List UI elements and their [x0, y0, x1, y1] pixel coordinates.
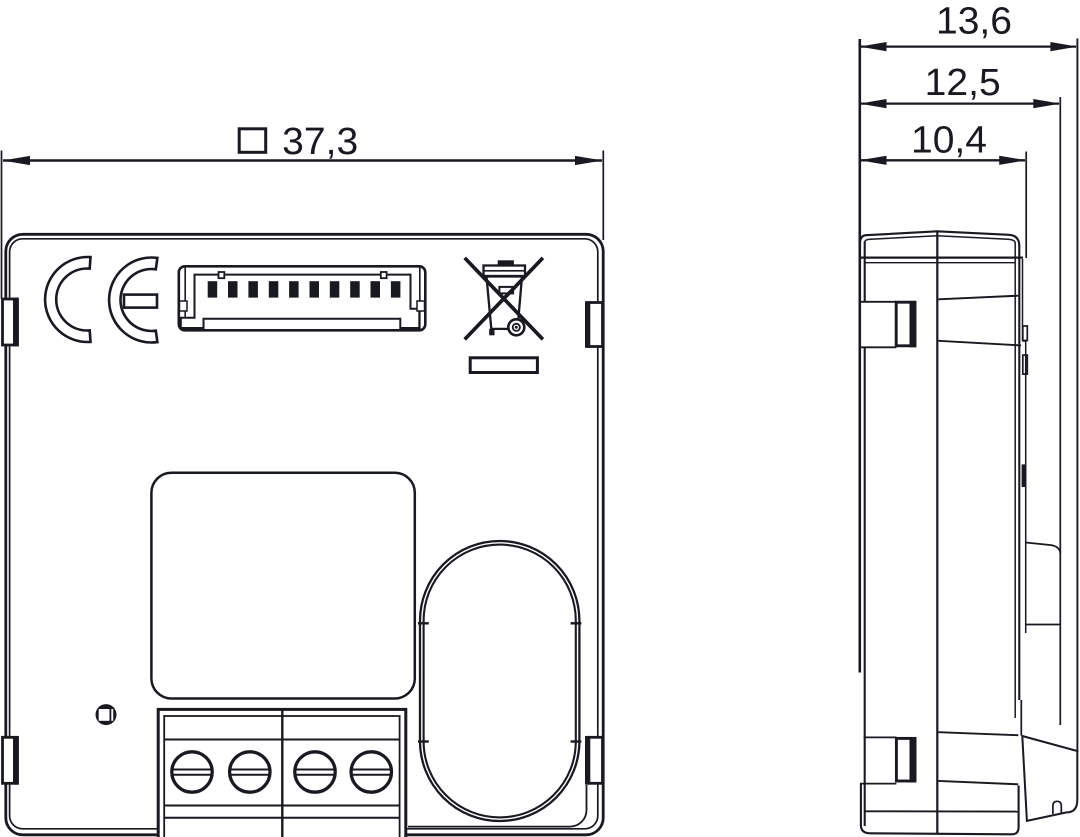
svg-text:12,5: 12,5 — [925, 62, 1001, 104]
svg-text:13,6: 13,6 — [936, 1, 1012, 43]
svg-text:10,4: 10,4 — [911, 119, 987, 161]
svg-text:37,3: 37,3 — [282, 121, 358, 163]
